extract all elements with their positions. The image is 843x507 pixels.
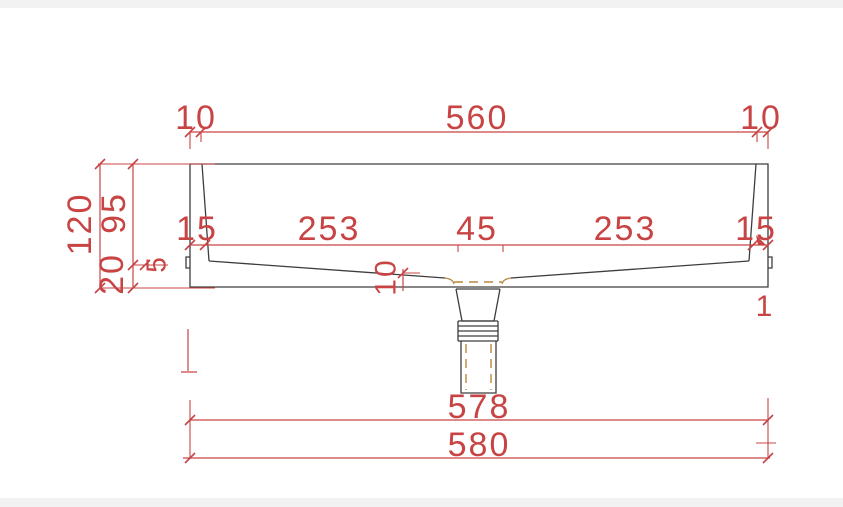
dim-label-left-20: 20 [93,253,131,295]
dim-label-drain-10: 10 [370,258,403,295]
dim-label-top-right-10: 10 [740,99,782,137]
dim-label-right-stray-1: 1 [756,290,775,323]
dim-label-left-120: 120 [61,193,99,256]
dim-label-top-left-10: 10 [175,99,217,137]
left-stray-mark [181,329,197,372]
drain-tailpiece [456,289,500,393]
dim-label-bottom-578: 578 [448,388,511,426]
drain-threads [458,321,498,341]
dim-label-mid-15-right: 15 [735,210,777,248]
drawing-canvas: 105601012095205152534525315101578580 [0,0,843,507]
dim-label-bottom-580: 580 [448,426,511,464]
dim-label-mid-45: 45 [456,210,498,248]
hidden-lines [445,278,511,390]
dim-label-left-95: 95 [95,192,133,234]
drain-neck [456,289,500,321]
dim-label-top-560: 560 [446,99,509,137]
basin-floor-left [209,261,445,278]
dim-label-mid-253-right: 253 [594,210,657,248]
dim-label-mid-253-left: 253 [298,210,361,248]
basin-floor-right [511,261,749,278]
dim-label-left-5: 5 [141,255,172,273]
drain-fillet-right [502,278,511,284]
drain-fillet-left [445,278,454,284]
dim-labels: 105601012095205152534525315101578580 [61,99,782,464]
dim-label-mid-15-left: 15 [176,210,218,248]
basin-section-drawing: 105601012095205152534525315101578580 [0,0,843,507]
